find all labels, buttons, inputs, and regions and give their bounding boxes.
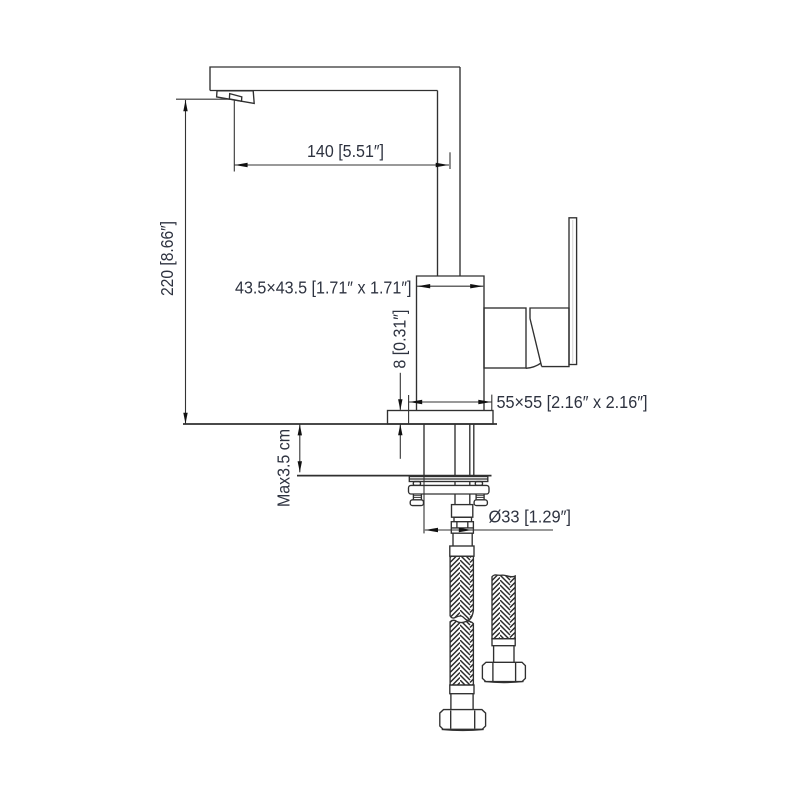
svg-text:220 [8.66″]: 220 [8.66″]: [157, 221, 177, 296]
svg-text:Ø33 [1.29″]: Ø33 [1.29″]: [489, 507, 572, 527]
svg-text:43.5×43.5 [1.71″ x 1.71″]: 43.5×43.5 [1.71″ x 1.71″]: [235, 278, 412, 298]
svg-text:Max3.5 cm: Max3.5 cm: [274, 429, 294, 507]
svg-text:8 [0.31″]: 8 [0.31″]: [389, 310, 409, 369]
svg-text:55×55 [2.16″ x 2.16″]: 55×55 [2.16″ x 2.16″]: [497, 392, 648, 412]
svg-text:140 [5.51″]: 140 [5.51″]: [307, 141, 384, 161]
